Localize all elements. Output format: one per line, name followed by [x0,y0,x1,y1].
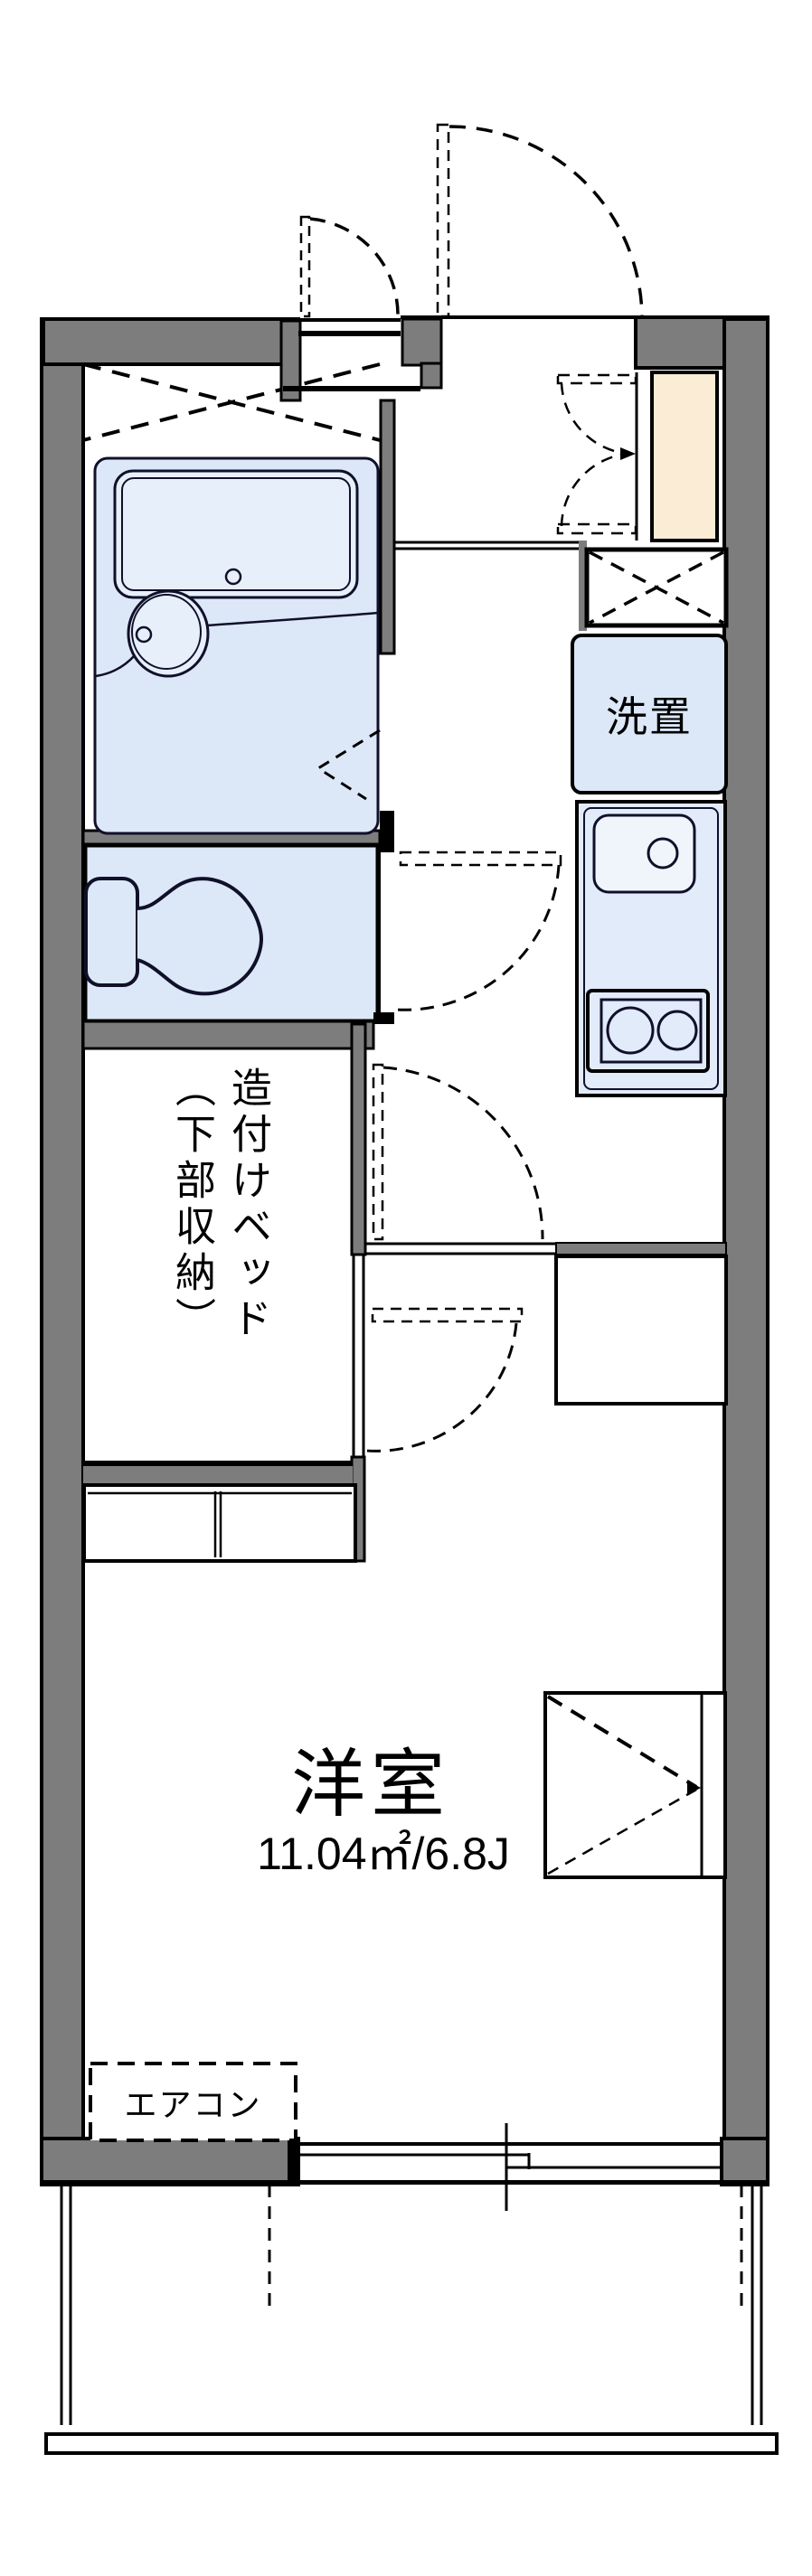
refrigerator-space [556,1256,726,1404]
door-swing-hall [383,1067,543,1239]
wall-bottom-left [42,2139,298,2185]
aircon-label: エアコン [90,2064,296,2140]
wall-bath-hall [381,400,394,653]
door-leaf-porch [301,217,309,316]
genkan-sill-line [298,318,401,322]
floorplan-page: { "labels": { "laundry": "洗置", "bed_line… [0,0,812,2576]
kitchen [572,541,726,1095]
wall-cap-toilet-top [380,811,394,852]
wall-bottom-outline [42,2180,768,2185]
wall-toilet-bed [83,1021,373,1048]
room-area-label: 11.04㎡/6.8J [194,1822,573,1878]
wall-top-line [401,315,644,319]
genkan-edge-line [283,386,420,391]
wall-genkan-right [402,319,441,365]
wall-bed-hall [352,1024,365,1255]
door-swing-entry [449,127,642,316]
door-leaf-toilet [401,852,561,865]
wall-right [724,319,768,2183]
balcony-rail [46,2434,777,2453]
toilet-fixture [86,879,261,993]
room-name-label: 洋室 [271,1732,470,1822]
stove [588,991,708,1071]
wall-kitchen-living [556,1243,726,1255]
wall-bottom-left-cap [288,2139,298,2185]
wall-genkan-right-stub [421,363,441,388]
window-sliding [298,2123,722,2211]
wall-top-left [43,319,298,364]
wall-bed-bottom-line [83,1461,353,1466]
shoe-cabinet [652,372,717,541]
bathroom-unit [95,458,378,833]
toilet-tank [86,879,137,985]
wash-basin [128,591,208,676]
closet-door-arrow [620,447,636,460]
built-in-bed-label-line2: （下部収納） [169,1067,215,1343]
laundry-space-label: 洗置 [572,635,726,793]
built-in-bed-label: 造付けベッド（下部収納） [158,1067,276,1428]
door-leaf-hall [373,1065,382,1239]
door-leaf-entry [438,125,448,316]
sink-faucet [648,839,677,868]
balcony [46,2185,777,2453]
door-leaf-living [373,1309,522,1321]
wall-bottom-right [722,2139,768,2185]
door-swing-toilet [396,865,559,1010]
genkan-step-line [298,331,401,336]
built-in-bed-label-line1: 造付けベッド [225,1067,271,1343]
wall-bed-bottom [83,1466,353,1483]
bathtub [115,471,357,597]
wall-left [42,319,83,2185]
wall-cap-toilet-bottom [373,1012,394,1024]
floor-plan-svg [0,0,812,2576]
kitchen-sink [594,815,694,892]
entry-area [558,372,717,541]
door-swing-porch [310,219,398,315]
door-swing-living [366,1323,516,1451]
